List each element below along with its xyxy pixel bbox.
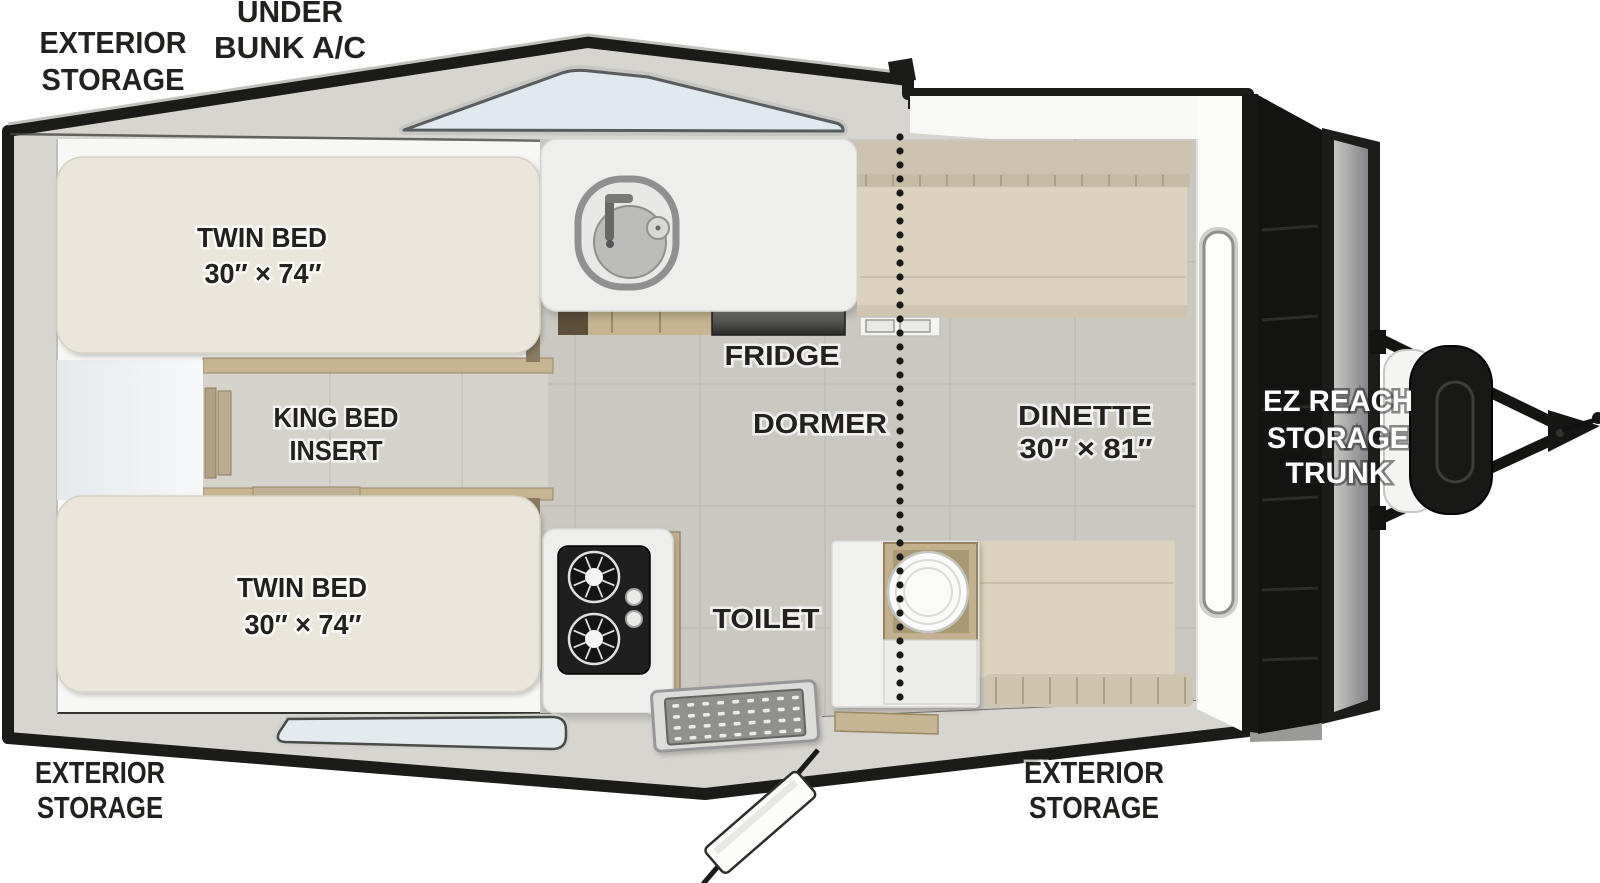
front-wall bbox=[1197, 96, 1242, 731]
toilet-bowl bbox=[888, 552, 968, 632]
front-window bbox=[1204, 232, 1233, 613]
label-twin-bed-top-2: 30″ × 74″ bbox=[205, 258, 322, 289]
fridge-unit bbox=[712, 309, 845, 335]
bench-top-edge bbox=[857, 305, 1187, 318]
floorplan-canvas: EXTERIOR STORAGE UNDER BUNK A/C TWIN BED… bbox=[0, 0, 1600, 883]
faucet-base bbox=[606, 240, 614, 248]
label-exterior-storage-bl-1: EXTERIOR bbox=[35, 755, 165, 790]
rear-storage-window bbox=[278, 717, 566, 749]
label-king-bed-insert-2: INSERT bbox=[290, 435, 383, 466]
label-twin-bed-bottom-1: TWIN BED bbox=[237, 572, 367, 603]
king-insert-rail-top bbox=[203, 358, 553, 373]
trunk-corner-post bbox=[1242, 94, 1258, 733]
label-ez-reach-3: TRUNK bbox=[1286, 457, 1391, 490]
stove-knob-1 bbox=[626, 589, 642, 605]
bench-top-slat-strip bbox=[857, 174, 1190, 187]
stove bbox=[543, 529, 680, 713]
vent-slot-1 bbox=[866, 320, 894, 332]
label-under-bunk-ac-2: BUNK A/C bbox=[214, 30, 366, 65]
label-exterior-storage-br-2: STORAGE bbox=[1029, 790, 1159, 825]
door-threshold bbox=[835, 712, 938, 734]
sink-drain-dot bbox=[656, 226, 661, 231]
label-dormer: DORMER bbox=[753, 408, 887, 439]
label-twin-bed-top-1: TWIN BED bbox=[197, 222, 327, 253]
bench-top-seat bbox=[857, 187, 1187, 305]
propane-tank bbox=[1410, 346, 1492, 514]
label-dinette-1: DINETTE bbox=[1018, 400, 1152, 431]
label-fridge: FRIDGE bbox=[725, 340, 840, 371]
dinette-bench-bottom bbox=[978, 541, 1193, 707]
dormer-boundary-dotted-line bbox=[896, 133, 903, 700]
toilet-cabinet bbox=[832, 541, 979, 707]
roof-notch-bracket bbox=[888, 58, 916, 84]
label-under-bunk-ac-1: UNDER bbox=[237, 0, 343, 29]
under-counter-dark-panel bbox=[558, 309, 588, 335]
king-headboard-1 bbox=[205, 388, 216, 478]
storage-trunk bbox=[1242, 94, 1380, 742]
label-ez-reach-1: EZ REACH bbox=[1263, 385, 1413, 418]
sink bbox=[578, 179, 676, 287]
label-exterior-storage-br-1: EXTERIOR bbox=[1024, 755, 1164, 790]
hitch-coupler bbox=[1548, 410, 1600, 452]
entry-step bbox=[651, 680, 819, 751]
twin-bed-top bbox=[57, 157, 540, 353]
label-exterior-storage-top-2: STORAGE bbox=[42, 62, 185, 97]
dinette-bench-top bbox=[857, 141, 1192, 318]
label-ez-reach-2: STORAGE bbox=[1267, 422, 1409, 455]
king-headboard-2 bbox=[218, 391, 231, 475]
stove-knob-2 bbox=[626, 611, 642, 627]
label-twin-bed-bottom-2: 30″ × 74″ bbox=[245, 609, 362, 640]
bench-top-backrest bbox=[857, 141, 1192, 174]
sink-counter bbox=[541, 139, 857, 335]
faucet-spout bbox=[605, 194, 633, 203]
label-exterior-storage-top-1: EXTERIOR bbox=[40, 25, 187, 60]
vent-slot-2 bbox=[900, 320, 930, 332]
step-tread bbox=[665, 689, 806, 745]
king-insert-platform bbox=[57, 360, 203, 500]
burner-2-cap bbox=[585, 630, 603, 648]
label-king-bed-insert-1: KING BED bbox=[274, 402, 399, 433]
bench-bottom-seat bbox=[978, 541, 1175, 677]
label-exterior-storage-bl-2: STORAGE bbox=[37, 790, 163, 825]
faucet-stem bbox=[605, 197, 614, 241]
label-dinette-2: 30″ × 81″ bbox=[1020, 433, 1153, 464]
burner-1-cap bbox=[585, 568, 603, 586]
floorplan-page: EXTERIOR STORAGE UNDER BUNK A/C TWIN BED… bbox=[0, 0, 1600, 883]
label-toilet: TOILET bbox=[713, 603, 820, 634]
bench-bottom-edge bbox=[985, 674, 1193, 707]
